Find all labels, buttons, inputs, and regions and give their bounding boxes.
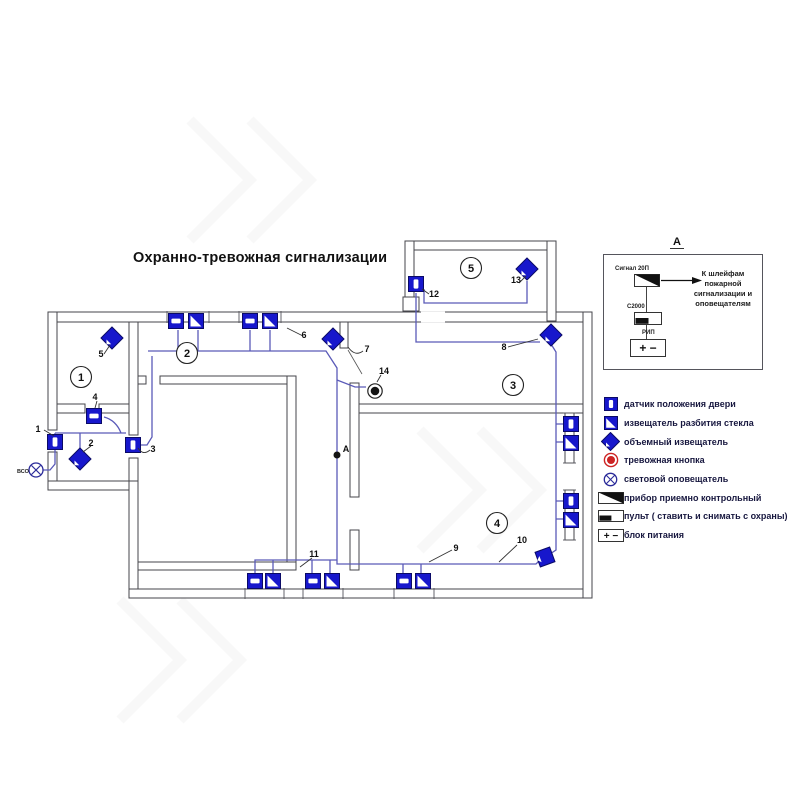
control-panel-icon [597,492,624,504]
legend-row: извещатель разбития стекла [597,414,799,433]
room-number-badge: 4 [487,513,508,534]
legend-row: датчик положения двери [597,395,799,414]
legend-label: датчик положения двери [624,399,736,409]
glass-break-detector-icon [189,314,204,329]
item-number: 13 [511,275,521,285]
door-position-sensor-icon [564,417,579,432]
legend-label: блок питания [624,530,684,540]
room-number-badge: 3 [503,375,524,396]
door-position-sensor-icon [48,435,63,450]
glass-break-detector-icon [597,416,624,430]
volumetric-detector-icon [597,432,624,451]
item-number: 5 [98,349,103,359]
light-annunciator-icon [29,463,43,477]
room-number-badge: 2 [177,343,198,364]
legend-label: световой оповещатель [624,474,728,484]
glass-break-detector-icon [266,574,281,589]
control-panel-icon [634,274,660,287]
annunciator-label: ВСО [17,469,30,475]
glass-break-detector-icon [325,574,340,589]
legend-label: объемный извещатель [624,437,728,447]
drawing-canvas: Охранно-тревожная сигнализации [0,0,800,800]
legend-row: прибор приемно контрольный [597,488,799,507]
legend-label: тревожная кнопка [624,455,705,465]
svg-text:2: 2 [184,348,190,360]
console-icon [634,312,662,325]
door-position-sensor-icon [87,409,102,424]
detail-a-box: Сигнал 20П К шлейфам пожарной сигнализац… [603,254,763,370]
item-number: 4 [92,392,97,402]
point-a-marker [334,452,341,459]
control-panel-label: Сигнал 20П [615,266,649,272]
legend-row: пульт ( ставить и снимать с охраны) [597,507,799,526]
volumetric-detector-icon [540,324,562,346]
item-number: 7 [364,344,369,354]
door-position-sensor-icon [169,314,184,329]
door-position-sensor-icon [409,277,424,292]
legend-label: прибор приемно контрольный [624,493,761,503]
door-position-sensor-icon [248,574,263,589]
svg-text:3: 3 [510,380,516,392]
light-annunciator-icon [597,472,624,487]
svg-text:+ −: + − [603,531,618,542]
power-supply-icon: + − [597,529,624,542]
watermark [120,120,540,720]
console-label: С2000 [627,304,645,310]
door-position-sensor-icon [126,438,141,453]
volumetric-detector-icon [69,448,91,470]
item-number: 9 [453,543,458,553]
detail-a-note: К шлейфам пожарной сигнализации и оповещ… [688,269,758,310]
item-number: 12 [429,289,439,299]
item-number: 3 [150,444,155,454]
svg-text:+ −: + − [639,341,656,355]
room-number-badge: 1 [71,367,92,388]
svg-text:5: 5 [468,263,474,275]
door-position-sensor-icon [243,314,258,329]
item-number: 14 [379,366,389,376]
volumetric-detector-icon [530,542,559,571]
door-position-sensor-icon [306,574,321,589]
legend-row: объемный извещатель [597,432,799,451]
item-number: 10 [517,535,527,545]
legend-label: пульт ( ставить и снимать с охраны) [624,511,788,521]
glass-break-detector-icon [416,574,431,589]
door-position-sensor-icon [597,397,624,411]
panic-button-icon [368,384,382,398]
item-number: 1 [35,424,40,434]
volumetric-detector-icon [101,327,123,349]
console-icon [597,510,624,522]
item-number: 8 [501,342,506,352]
svg-text:1: 1 [78,372,84,384]
glass-break-detector-icon [564,436,579,451]
point-a-label: А [343,444,350,454]
glass-break-detector-icon [263,314,278,329]
alarm-wiring [43,281,563,574]
power-supply-icon: + − [630,339,666,357]
room-number-badge: 5 [461,258,482,279]
panic-button-icon [597,452,624,468]
item-number: 6 [301,330,306,340]
detail-a-title: А [670,236,684,249]
walls [48,241,592,598]
svg-text:4: 4 [494,518,501,530]
legend-row: световой оповещатель [597,470,799,489]
door-position-sensor-icon [564,494,579,509]
item-number: 2 [88,438,93,448]
window-ticks [167,311,576,599]
legend-row: + − блок питания [597,526,799,545]
item-number: 11 [309,549,319,559]
legend-row: тревожная кнопка [597,451,799,470]
legend-label: извещатель разбития стекла [624,418,754,428]
power-supply-label: РИП [642,330,655,336]
glass-break-detector-icon [564,513,579,528]
door-position-sensor-icon [397,574,412,589]
legend: датчик положения двери извещатель разбит… [597,395,799,545]
